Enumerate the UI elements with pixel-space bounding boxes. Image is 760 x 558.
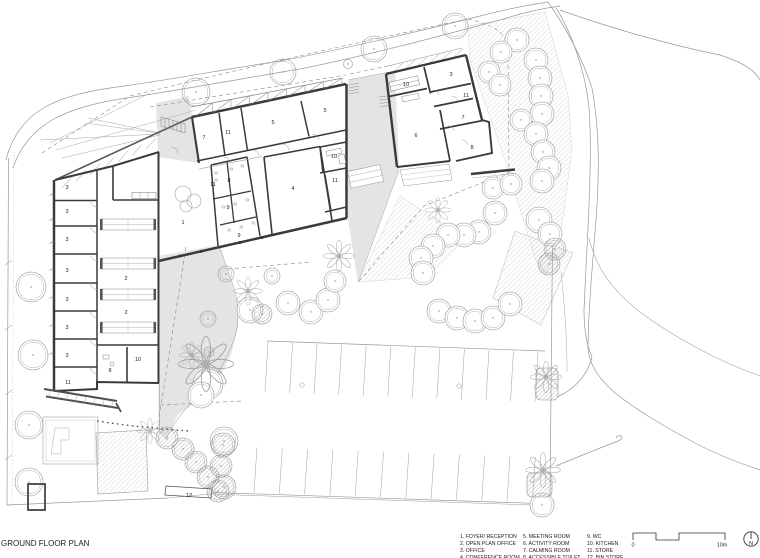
- svg-text:2: 2: [124, 310, 127, 316]
- svg-text:10: 10: [331, 154, 337, 160]
- svg-text:5: 5: [323, 108, 326, 114]
- svg-text:6: 6: [414, 133, 417, 139]
- svg-text:5: 5: [271, 120, 274, 126]
- svg-text:10. KITCHEN: 10. KITCHEN: [587, 541, 619, 547]
- svg-text:7: 7: [202, 135, 205, 141]
- svg-text:10: 10: [135, 357, 141, 363]
- svg-text:3: 3: [65, 325, 68, 331]
- svg-text:3: 3: [65, 237, 68, 243]
- svg-text:8: 8: [108, 368, 111, 374]
- svg-text:GROUND FLOOR PLAN: GROUND FLOOR PLAN: [1, 539, 90, 548]
- svg-text:11: 11: [332, 178, 338, 184]
- svg-text:0: 0: [632, 543, 635, 549]
- svg-text:11. STORE: 11. STORE: [587, 548, 614, 554]
- svg-text:4: 4: [291, 186, 294, 192]
- svg-text:3. OFFICE: 3. OFFICE: [460, 548, 485, 554]
- svg-text:8: 8: [227, 178, 230, 184]
- svg-text:N: N: [749, 541, 753, 547]
- svg-text:11: 11: [210, 182, 216, 188]
- svg-text:11: 11: [65, 380, 71, 386]
- svg-text:9. WC: 9. WC: [587, 534, 602, 540]
- svg-text:3: 3: [65, 209, 68, 215]
- svg-text:3: 3: [65, 268, 68, 274]
- svg-text:3: 3: [65, 185, 68, 191]
- svg-text:7. CALMING ROOM: 7. CALMING ROOM: [523, 548, 570, 554]
- svg-text:12: 12: [186, 493, 192, 499]
- svg-text:1: 1: [181, 220, 184, 226]
- svg-text:6. ACTIVITY ROOM: 6. ACTIVITY ROOM: [523, 541, 569, 547]
- svg-text:9: 9: [226, 205, 229, 211]
- svg-text:1. FOYER/ RECEPTION: 1. FOYER/ RECEPTION: [460, 534, 517, 540]
- svg-text:3: 3: [65, 297, 68, 303]
- svg-text:11: 11: [225, 130, 231, 136]
- svg-text:9: 9: [237, 233, 240, 239]
- svg-text:5. MEETING ROOM: 5. MEETING ROOM: [523, 534, 570, 540]
- svg-text:2. OPEN PLAN OFFICE: 2. OPEN PLAN OFFICE: [460, 541, 516, 547]
- svg-text:7: 7: [461, 115, 464, 121]
- svg-text:10: 10: [403, 82, 409, 88]
- svg-text:8: 8: [470, 145, 473, 151]
- svg-text:3: 3: [449, 72, 452, 78]
- svg-text:2: 2: [124, 276, 127, 282]
- svg-text:11: 11: [463, 93, 469, 99]
- svg-text:10m: 10m: [717, 543, 728, 549]
- svg-text:3: 3: [65, 353, 68, 359]
